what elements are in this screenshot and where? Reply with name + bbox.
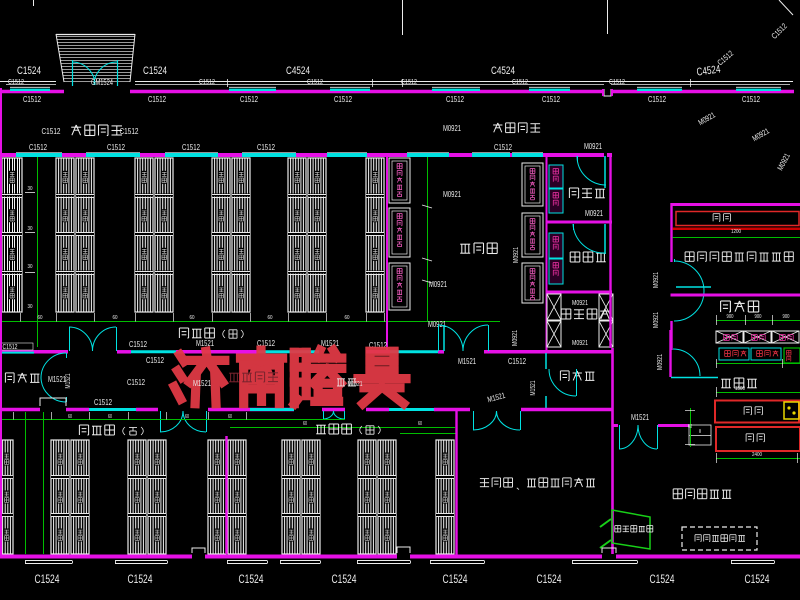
svg-text:C1512: C1512 bbox=[8, 77, 24, 86]
svg-text:M0921: M0921 bbox=[651, 312, 660, 328]
svg-text:M1521: M1521 bbox=[458, 357, 476, 366]
svg-text:60: 60 bbox=[185, 414, 189, 420]
svg-text:M1521: M1521 bbox=[193, 379, 211, 388]
svg-text:60: 60 bbox=[345, 315, 350, 321]
svg-text:C1524: C1524 bbox=[128, 574, 153, 586]
svg-text:C1512: C1512 bbox=[146, 356, 164, 365]
svg-text:C1512: C1512 bbox=[107, 143, 125, 152]
svg-text:60: 60 bbox=[108, 414, 112, 420]
svg-text:M1521: M1521 bbox=[65, 373, 72, 388]
svg-text:C1512: C1512 bbox=[508, 357, 526, 366]
svg-text:60: 60 bbox=[68, 414, 72, 420]
svg-text:M1521: M1521 bbox=[530, 380, 537, 395]
svg-text:C1512: C1512 bbox=[257, 143, 275, 152]
svg-text:C1512: C1512 bbox=[307, 77, 323, 86]
svg-text:C1524: C1524 bbox=[17, 65, 41, 77]
svg-text:M1521: M1521 bbox=[631, 413, 649, 422]
svg-text:M0921: M0921 bbox=[584, 142, 602, 151]
svg-text:M0921: M0921 bbox=[510, 330, 519, 346]
svg-text:60: 60 bbox=[418, 421, 422, 427]
svg-text:C1524: C1524 bbox=[745, 574, 770, 586]
svg-text:M0921: M0921 bbox=[585, 209, 603, 218]
svg-text:30: 30 bbox=[28, 304, 33, 310]
svg-text:C1512: C1512 bbox=[240, 95, 258, 104]
svg-text:M1521: M1521 bbox=[196, 339, 214, 348]
svg-text:C1512: C1512 bbox=[742, 95, 760, 104]
svg-text:900: 900 bbox=[727, 314, 734, 320]
svg-text:M0921: M0921 bbox=[443, 190, 461, 199]
svg-text:M1521: M1521 bbox=[48, 375, 66, 384]
svg-text:60: 60 bbox=[38, 315, 43, 321]
svg-text:M0921: M0921 bbox=[572, 338, 588, 347]
svg-text:C1512: C1512 bbox=[494, 143, 512, 152]
svg-text:M0921: M0921 bbox=[511, 247, 520, 263]
svg-text:30: 30 bbox=[28, 264, 33, 270]
svg-text:C1524: C1524 bbox=[239, 574, 264, 586]
svg-text:C4524: C4524 bbox=[286, 65, 310, 77]
svg-text:1500: 1500 bbox=[735, 386, 745, 392]
svg-text:M0921: M0921 bbox=[429, 280, 447, 289]
svg-text:C1512: C1512 bbox=[120, 126, 139, 136]
svg-text:C1512: C1512 bbox=[94, 398, 112, 407]
svg-text:C1524: C1524 bbox=[443, 574, 468, 586]
svg-text:GM1524: GM1524 bbox=[91, 77, 113, 87]
svg-text:60: 60 bbox=[688, 424, 692, 430]
svg-text:M0921: M0921 bbox=[655, 354, 664, 370]
svg-text:900: 900 bbox=[755, 314, 762, 320]
svg-text:M0921: M0921 bbox=[651, 272, 660, 288]
svg-text:C1512: C1512 bbox=[29, 143, 47, 152]
svg-text:C1512: C1512 bbox=[609, 77, 625, 86]
svg-text:60: 60 bbox=[190, 315, 195, 321]
svg-text:C1512: C1512 bbox=[148, 95, 166, 104]
svg-text:60: 60 bbox=[303, 421, 307, 427]
svg-text:C1512: C1512 bbox=[127, 378, 145, 387]
svg-text:C1512: C1512 bbox=[542, 95, 560, 104]
svg-text:1200: 1200 bbox=[731, 229, 741, 235]
svg-text:C1524: C1524 bbox=[537, 574, 562, 586]
svg-text:C1512: C1512 bbox=[199, 77, 215, 86]
svg-text:C1512: C1512 bbox=[446, 95, 464, 104]
svg-text:60: 60 bbox=[228, 414, 232, 420]
svg-text:C1512: C1512 bbox=[401, 77, 417, 86]
svg-text:M: M bbox=[699, 429, 701, 435]
svg-text:60: 60 bbox=[113, 315, 118, 321]
svg-text:30: 30 bbox=[28, 186, 33, 192]
svg-text:M0921: M0921 bbox=[572, 298, 588, 307]
svg-text:C1512: C1512 bbox=[42, 126, 61, 136]
svg-text:C1524: C1524 bbox=[650, 574, 675, 586]
svg-text:C1524: C1524 bbox=[143, 65, 167, 77]
svg-text:60: 60 bbox=[268, 315, 273, 321]
svg-text:C1512: C1512 bbox=[648, 95, 666, 104]
svg-text:C1512: C1512 bbox=[182, 143, 200, 152]
svg-text:C1524: C1524 bbox=[35, 574, 60, 586]
svg-text:C1524: C1524 bbox=[332, 574, 357, 586]
svg-text:C1512: C1512 bbox=[23, 95, 41, 104]
svg-text:C1512: C1512 bbox=[334, 95, 352, 104]
svg-text:M1521: M1521 bbox=[348, 381, 363, 388]
svg-text:C1512: C1512 bbox=[512, 77, 528, 86]
svg-text:M0921: M0921 bbox=[443, 124, 461, 133]
svg-text:30: 30 bbox=[28, 226, 33, 232]
svg-text:2400: 2400 bbox=[752, 452, 762, 458]
svg-text:C4524: C4524 bbox=[491, 65, 515, 77]
svg-text:C1512: C1512 bbox=[129, 340, 147, 349]
svg-text:900: 900 bbox=[783, 314, 790, 320]
